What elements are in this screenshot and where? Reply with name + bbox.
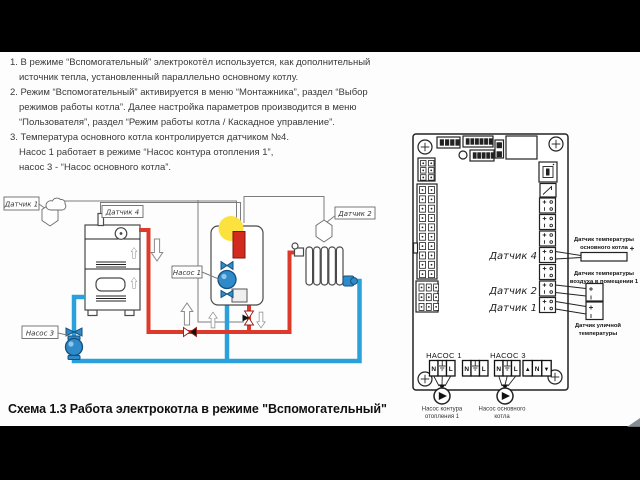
connector-pin-dot — [431, 217, 433, 219]
pump1-terminal-header: НАСОС 1 — [426, 351, 462, 360]
connector-pin — [445, 140, 449, 146]
svg-text:L: L — [514, 366, 518, 373]
sensor-terminal-1 — [540, 298, 556, 313]
svg-text:Датчик уличной: Датчик уличной — [575, 322, 621, 329]
svg-text:L: L — [482, 366, 486, 373]
sensor-terminal — [540, 265, 556, 280]
connector-pin-dot — [422, 264, 424, 266]
svg-text:N: N — [496, 366, 501, 373]
connector-pin — [450, 140, 454, 146]
connector-top-4 — [495, 140, 504, 158]
diagram-canvas: Датчик 1 Датчик 4 Датчик 2 Насос 1 — [0, 52, 640, 426]
svg-text:отопления 1: отопления 1 — [425, 414, 460, 420]
label-sensor-4: Датчик 4 — [102, 206, 143, 218]
connector-pin-dot — [421, 287, 423, 289]
diagram-caption: Схема 1.3 Работа электрокотла в режиме "… — [8, 402, 387, 416]
connector-left-tall — [414, 184, 438, 279]
fuse-block — [539, 162, 557, 182]
connector-pin — [491, 153, 494, 159]
connector-pin — [440, 140, 444, 146]
sensor-terminal — [540, 198, 556, 213]
connector-pin-dot — [431, 227, 433, 229]
connector-pin — [487, 153, 490, 159]
svg-text:Датчик температуры: Датчик температуры — [574, 271, 634, 277]
three-way-valve — [243, 311, 254, 325]
connector-pin-dot — [422, 177, 424, 179]
connector-pin-dot — [421, 306, 423, 308]
radiator — [292, 243, 357, 286]
label-pump-3: Насос 3 — [22, 326, 67, 339]
connector-top-1 — [437, 137, 460, 148]
sensor-1-outdoor — [42, 198, 66, 226]
svg-text:▼: ▼ — [544, 367, 550, 373]
svg-text:Датчик температуры: Датчик температуры — [574, 237, 634, 243]
connector-pin — [497, 152, 502, 158]
connector-pin — [475, 139, 478, 145]
connector-pin — [480, 139, 483, 145]
svg-text:Датчик 2: Датчик 2 — [337, 210, 372, 218]
connector-pin-dot — [422, 227, 424, 229]
letterbox-top — [0, 0, 640, 52]
svg-text:Насос 3: Насос 3 — [26, 330, 54, 338]
sensor-terminal-4 — [540, 248, 556, 263]
svg-text:основного котла: основного котла — [580, 245, 628, 251]
fire-door — [96, 278, 125, 291]
svg-text:Датчик 4: Датчик 4 — [105, 209, 139, 217]
flow-up-icon — [181, 303, 193, 325]
radiator-return-fitting — [343, 276, 357, 286]
connector-pin-dot — [431, 198, 433, 200]
connector-pin-dot — [422, 217, 424, 219]
connector-left-lower — [416, 281, 439, 312]
connector-pin — [482, 153, 485, 159]
connector-pin-dot — [431, 255, 433, 257]
connector-pin-dot — [431, 273, 433, 275]
connector-pin-dot — [431, 245, 433, 247]
connector-pin-dot — [430, 162, 432, 164]
connector-pin-dot — [435, 306, 437, 308]
connector-pin-dot — [431, 236, 433, 238]
connector-pin-dot — [435, 287, 437, 289]
connector-pin-dot — [422, 245, 424, 247]
board-sensor4-label: Датчик 4 — [488, 251, 537, 262]
heating-element — [233, 232, 245, 259]
svg-text:N: N — [464, 366, 469, 373]
buzzer-icon — [459, 151, 467, 159]
solid-fuel-boiler — [85, 214, 140, 316]
slide-content: 1. В режиме “Вспомогательный” электрокот… — [0, 52, 640, 426]
svg-text:Насос контура: Насос контура — [422, 407, 463, 413]
connector-pin — [489, 139, 492, 145]
connector-pin-dot — [431, 264, 433, 266]
flow-down-icon — [151, 239, 163, 261]
piping-diagram: Датчик 1 Датчик 4 Датчик 2 Насос 1 — [4, 197, 375, 362]
svg-text:N: N — [535, 366, 540, 373]
label-sensor-2: Датчик 2 — [335, 207, 375, 219]
connector-pin-dot — [422, 189, 424, 191]
sensor-2-room hexagon-sensor-icon — [316, 220, 332, 242]
svg-text:L: L — [449, 366, 453, 373]
terminal-group-pump3: N L — [495, 361, 521, 377]
connector-top-3 — [470, 150, 494, 161]
connector-pin-dot — [431, 208, 433, 210]
connector-pin-dot — [430, 169, 432, 171]
video-frame: 1. В режиме “Вспомогательный” электрокот… — [0, 0, 640, 480]
cloud-icon — [46, 198, 66, 210]
connector-pin-dot — [422, 236, 424, 238]
screw-icon — [549, 137, 563, 151]
connector-pin — [484, 139, 487, 145]
screw-icon — [418, 140, 432, 154]
connector-pin-dot — [431, 189, 433, 191]
connector-pin-dot — [428, 296, 430, 298]
board-sensor1-label: Датчик 1 — [488, 303, 537, 314]
connector-left-small — [418, 158, 435, 181]
check-valve — [184, 328, 197, 337]
connector-pin — [456, 140, 460, 146]
connector-pin-dot — [422, 273, 424, 275]
sensor-terminal — [540, 215, 556, 230]
pump3-terminal-header: НАСОС 3 — [490, 351, 526, 360]
connector-pin — [473, 153, 476, 159]
letterbox-bottom — [0, 426, 640, 480]
svg-text:Датчик 1: Датчик 1 — [4, 201, 38, 209]
terminal-group-middle: N L — [463, 361, 489, 377]
controller-board-diagram: Датчик 4 Датчик 2 Датчик 1 Датчик темпер… — [413, 134, 639, 420]
electric-boiler — [211, 216, 263, 305]
svg-text:температуры: температуры — [579, 331, 617, 337]
connector-pin — [497, 143, 502, 149]
connector-pin-dot — [422, 162, 424, 164]
svg-text:Насос основного: Насос основного — [479, 407, 527, 413]
control-display — [232, 289, 247, 302]
svg-text:Насос 1: Насос 1 — [173, 269, 201, 277]
terminal-group-pump1: N L — [430, 361, 456, 377]
flow-up-icon — [209, 312, 217, 328]
svg-text:N: N — [431, 366, 436, 373]
flow-down-icon — [257, 312, 265, 328]
sensor-terminal-2 — [540, 281, 556, 296]
connector-pin-dot — [422, 255, 424, 257]
svg-text:котла: котла — [494, 414, 510, 420]
connector-pin-dot — [421, 296, 423, 298]
svg-text:▲: ▲ — [525, 367, 531, 373]
connector-pin-dot — [422, 198, 424, 200]
connector-pin — [478, 153, 481, 159]
pump-symbol-icon — [434, 388, 450, 404]
board-sensor2-label: Датчик 2 — [488, 286, 537, 297]
svg-text:воздуха в помещении 1: воздуха в помещении 1 — [570, 279, 639, 285]
connector-top-2 — [463, 136, 493, 147]
label-sensor-1: Датчик 1 — [4, 197, 39, 210]
connector-pin-dot — [428, 306, 430, 308]
relay-block — [506, 136, 537, 159]
connector-pin-dot — [428, 287, 430, 289]
boiler-leg — [125, 310, 134, 316]
connector-pin-dot — [430, 177, 432, 179]
terminal-group-triac: ▲ N ▼ — [523, 361, 551, 377]
switch-block — [540, 184, 556, 198]
connector-pin-dot — [435, 296, 437, 298]
connector-pin — [471, 139, 474, 145]
sensor-terminal — [540, 231, 556, 246]
pump-symbol-icon — [497, 388, 513, 404]
boiler-leg — [88, 310, 97, 316]
connector-pin-dot — [422, 169, 424, 171]
connector-pin-dot — [422, 208, 424, 210]
connector-pin — [466, 139, 469, 145]
